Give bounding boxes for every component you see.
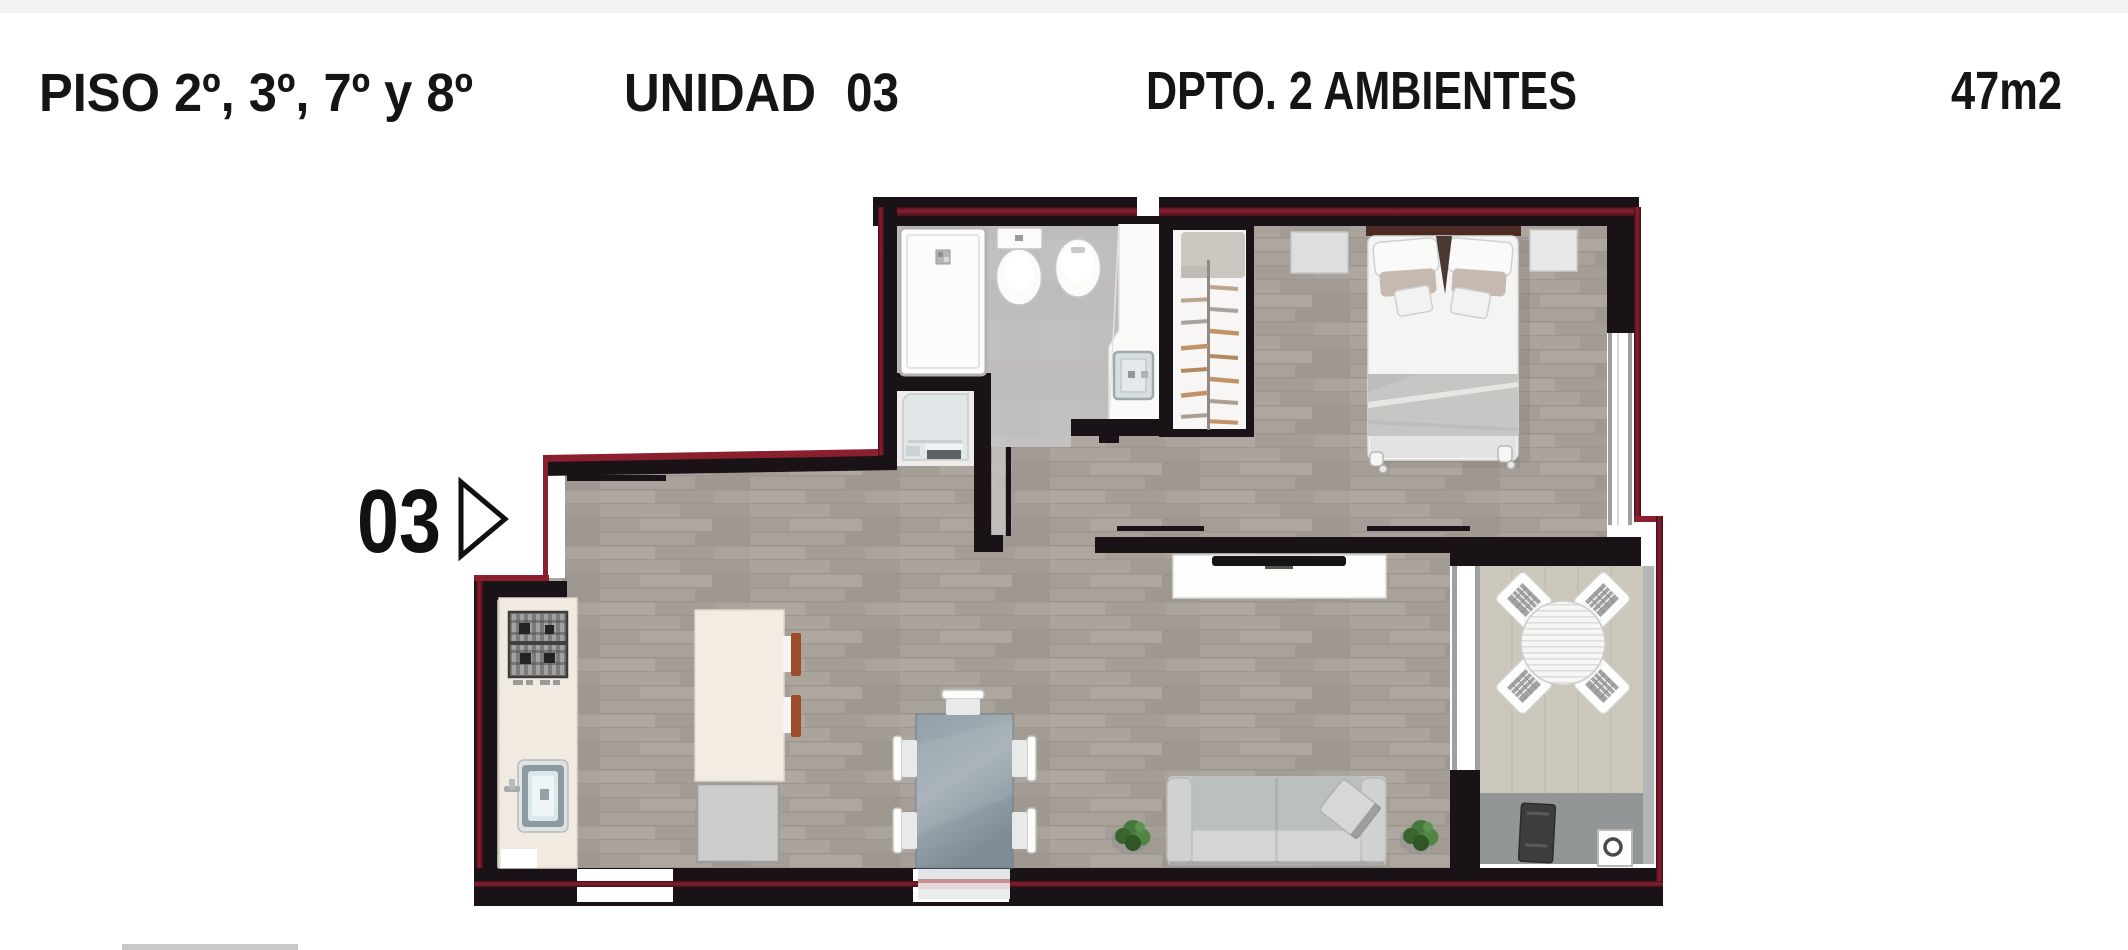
svg-text:03: 03	[357, 472, 441, 572]
svg-text:47m2: 47m2	[1951, 61, 2062, 121]
svg-text:PISO 2º, 3º, 7º y 8º: PISO 2º, 3º, 7º y 8º	[39, 63, 473, 123]
svg-text:UNIDAD: UNIDAD	[624, 63, 816, 123]
svg-text:DPTO. 2 AMBIENTES: DPTO. 2 AMBIENTES	[1146, 61, 1577, 121]
svg-text:03: 03	[846, 63, 899, 123]
